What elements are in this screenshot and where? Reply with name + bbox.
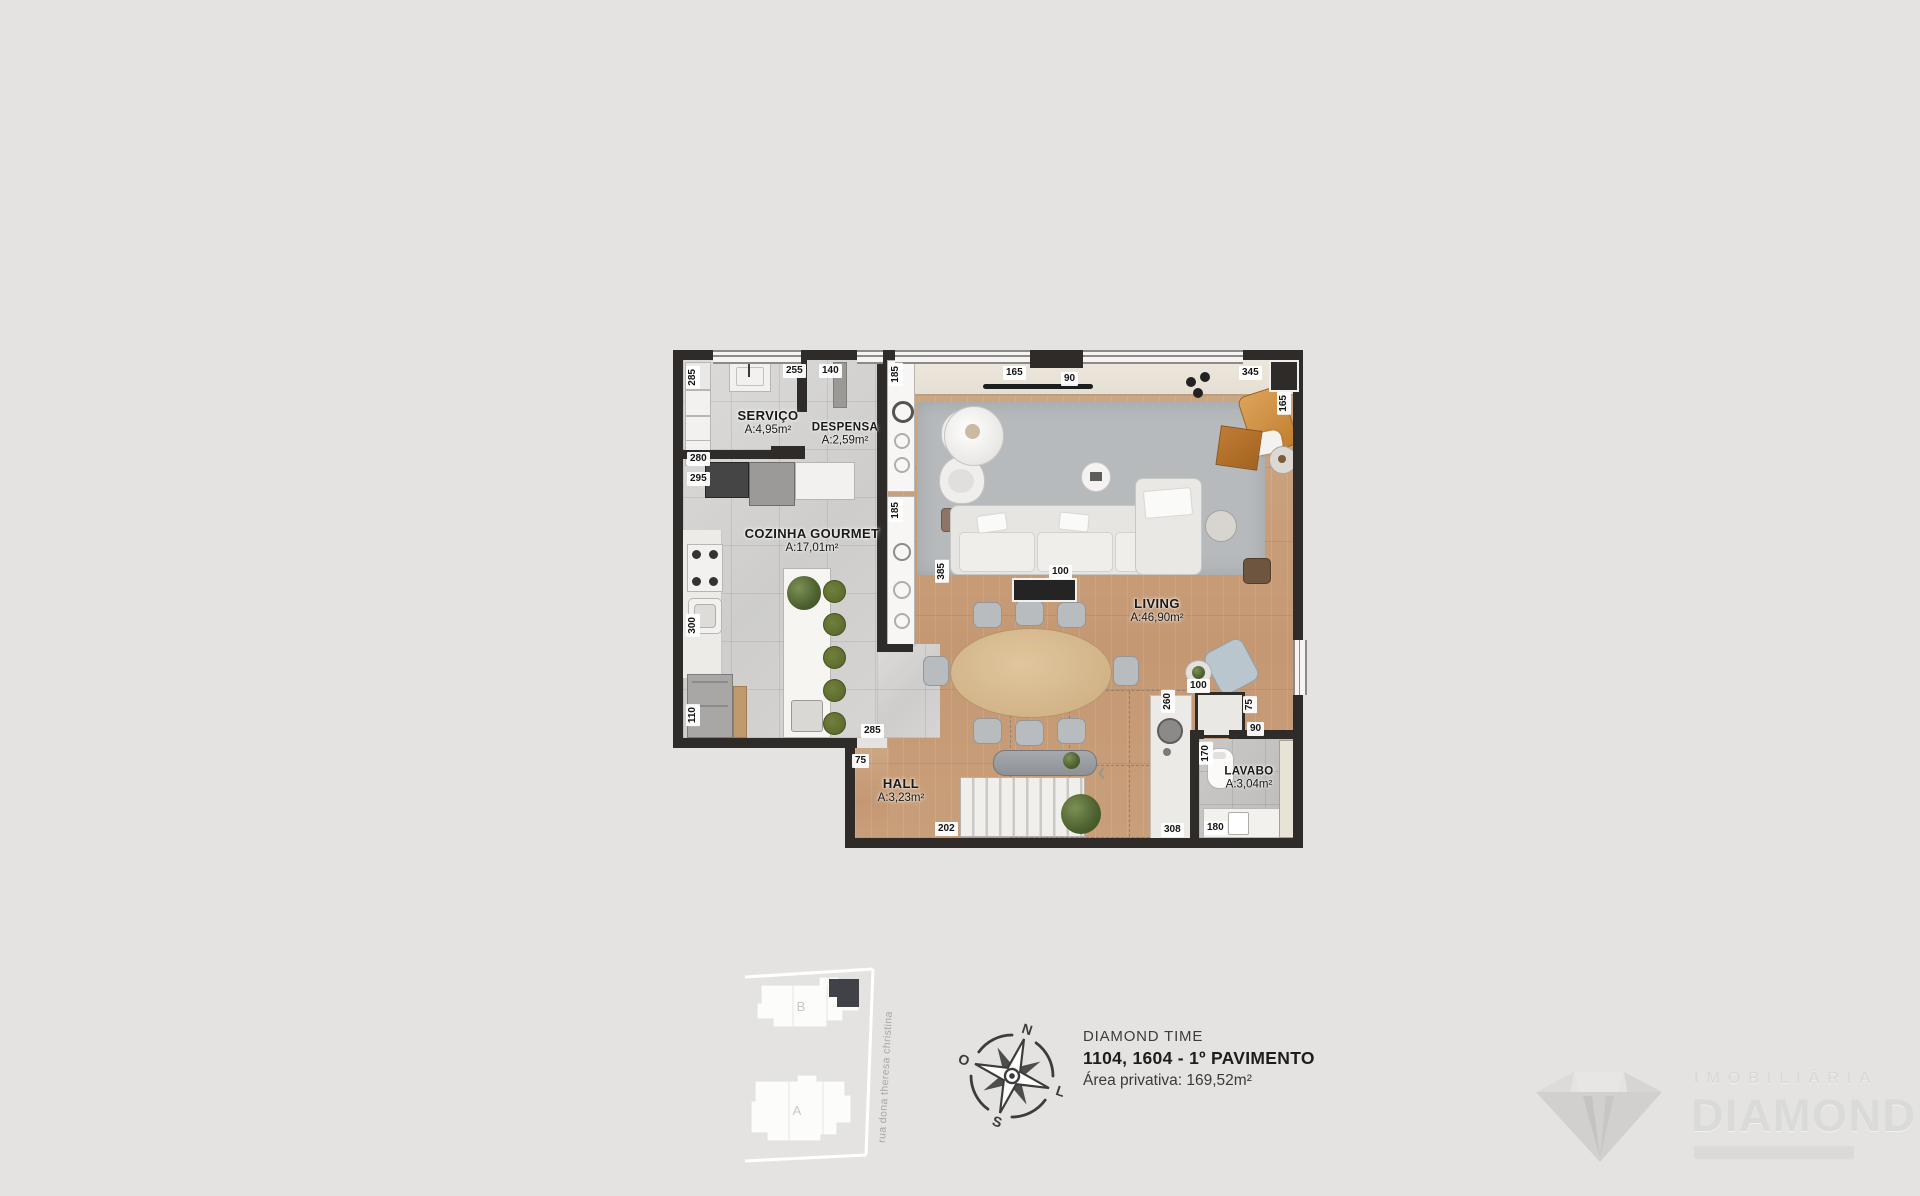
wall-kitchen-bottom [673, 738, 857, 748]
sofa-chaise [1135, 478, 1202, 575]
dining-chair [1057, 602, 1086, 628]
tray-dot [1278, 455, 1286, 463]
coffee-bean-table [1243, 558, 1271, 584]
bar-sink [1157, 718, 1183, 744]
dining-chair [1057, 718, 1086, 744]
tank-basin [736, 367, 764, 386]
dim-label: 140 [819, 364, 842, 378]
sofa-cushion [959, 532, 1035, 572]
dim-label: 285 [686, 366, 700, 389]
dining-chair [1113, 656, 1139, 686]
dim-label: 90 [1061, 372, 1078, 386]
duct-circle [894, 457, 910, 473]
room-label-hall: HALL A:3,23m² [878, 776, 925, 804]
dim-label: 75 [852, 754, 869, 768]
dim-label: 300 [686, 614, 700, 637]
window-living-2 [1083, 350, 1243, 364]
dim-label: 100 [1187, 679, 1210, 693]
wall-lavabo-left [1190, 730, 1199, 838]
book [1090, 472, 1102, 481]
wall-bottom [845, 838, 1303, 848]
dining-chair [1015, 720, 1044, 746]
site-key-map: B A rua dona theresa christina [733, 963, 905, 1168]
washer-line [692, 681, 728, 683]
vanity-sink [1228, 812, 1249, 835]
coffee-table-decor [965, 424, 980, 439]
street-line [745, 1155, 866, 1161]
private-area: Área privativa: 169,52m² [1083, 1072, 1252, 1090]
wall-right [1293, 350, 1303, 848]
cabinet-divider [686, 440, 710, 442]
dim-label: 295 [687, 472, 710, 486]
sofa-pillow [1143, 487, 1193, 519]
bar-counter [1150, 695, 1192, 840]
wall-shaft-end [877, 644, 913, 652]
dim-label: 180 [1204, 821, 1227, 835]
void-line [1129, 691, 1130, 837]
bench-plant [1063, 752, 1080, 769]
room-label-servico: SERVIÇO A:4,95m² [737, 408, 798, 436]
street-line [745, 969, 873, 977]
duct-ring [892, 401, 914, 423]
floor-plan: ❮ SERVIÇO A:4,95m² DESPENSA A:2,59m² COZ… [673, 350, 1303, 850]
logo-subtext-smudge [1694, 1146, 1854, 1159]
dim-label: 202 [935, 822, 958, 836]
tower-b-label: B [797, 999, 806, 1014]
kitchen-oven-unit [749, 462, 795, 506]
armchair-seat [948, 469, 974, 493]
unit-title: 1104, 1604 - 1º PAVIMENTO [1083, 1048, 1315, 1069]
brand-diamond-icon [1528, 1052, 1668, 1164]
tray-side-table [1205, 510, 1237, 542]
dining-chair [1015, 600, 1044, 626]
dim-label: 90 [1247, 722, 1264, 736]
tower-a-label: A [793, 1103, 802, 1118]
wood-shelf [733, 686, 747, 738]
side-table-round [1081, 462, 1111, 492]
compass-north-label: N [1020, 1022, 1035, 1038]
room-label-despensa: DESPENSA A:2,59m² [812, 422, 878, 447]
compass-west-label: O [958, 1050, 972, 1069]
dining-chair [973, 718, 1002, 744]
kitchen-fridge [705, 462, 749, 498]
project-name: DIAMOND TIME [1083, 1028, 1203, 1045]
dim-label: 100 [1049, 565, 1072, 579]
duct-circle [894, 613, 910, 629]
dim-label: 170 [1199, 742, 1213, 765]
dining-chair [923, 656, 949, 686]
compass-group: N S L O [958, 1022, 1066, 1130]
decor-dot [1200, 372, 1210, 382]
wood-ottoman [1215, 425, 1262, 470]
servico-counter-dark [771, 446, 805, 459]
room-label-lavabo: LAVABO A:3,04m² [1224, 766, 1273, 791]
dim-label: 385 [935, 560, 949, 583]
compass-arc [979, 1027, 1012, 1060]
laundry-tank [729, 360, 771, 392]
bar-stool [823, 712, 846, 735]
compass-arc [963, 1076, 996, 1109]
compass-arc [1012, 1092, 1045, 1125]
cooktop [687, 544, 723, 592]
street-line [866, 969, 873, 1155]
dim-label: 345 [1239, 366, 1262, 380]
hall-bench [993, 750, 1097, 776]
decor-dot [1186, 377, 1196, 387]
street-name: rua dona theresa christina [876, 1011, 895, 1143]
compass-rose-icon: N S L O [958, 1022, 1066, 1130]
sofa-pillow [1058, 511, 1090, 532]
decor-dot [1193, 388, 1203, 398]
burner [709, 550, 718, 559]
dim-label: 285 [861, 724, 884, 738]
hall-plant [1061, 794, 1101, 834]
coffee-table-round [944, 406, 1004, 466]
dim-label: 280 [687, 452, 710, 466]
sofa-pillow [976, 512, 1008, 534]
logo-category-text: IMOBILIÁRIA [1694, 1070, 1878, 1088]
cabinet-divider [686, 415, 710, 417]
island-plant [787, 576, 821, 610]
chevron-left-icon: ❮ [1097, 766, 1109, 778]
dim-label: 110 [686, 704, 700, 726]
wall-left [673, 350, 683, 748]
dim-label: 165 [1277, 392, 1291, 415]
wall-despensa-living [877, 350, 887, 645]
door-pocket-block [1030, 350, 1083, 368]
small-plant [1192, 666, 1205, 679]
room-label-living: LIVING A:46,90m² [1130, 596, 1183, 624]
bar-stool [823, 646, 846, 669]
room-label-cozinha: COZINHA GOURMET A:17,01m² [745, 526, 880, 554]
tv-console [1012, 578, 1077, 602]
bar-dot [1163, 748, 1171, 756]
shaft-box-corner [1269, 360, 1299, 392]
window-living-right [1293, 640, 1307, 695]
bar-stool [823, 580, 846, 603]
dim-label: 308 [1161, 823, 1184, 837]
logo-brand-text: DIAMOND [1691, 1090, 1916, 1142]
bar-stool [823, 679, 846, 702]
dim-label: 260 [1161, 690, 1175, 713]
dim-label: 185 [889, 499, 903, 522]
toilet-tank [1212, 752, 1226, 759]
burner [692, 577, 701, 586]
page: { "colors": { "background": "#e4e3e2", "… [0, 0, 1920, 1196]
duct-circle [893, 581, 911, 599]
balcony-strip [887, 360, 1293, 396]
window-despensa [857, 350, 883, 364]
dining-table [950, 628, 1112, 718]
duct-circle [894, 433, 910, 449]
compass-arc [1028, 1043, 1061, 1076]
burner [709, 577, 718, 586]
dim-label: 165 [1003, 366, 1026, 380]
burner [692, 550, 701, 559]
window-living-1 [895, 350, 1030, 364]
compass-south-label: S [990, 1113, 1004, 1130]
dim-label: 185 [889, 363, 903, 386]
window-servico [713, 350, 801, 364]
bar-stool [823, 613, 846, 636]
dim-label: 75 [1243, 696, 1257, 713]
compass-east-label: L [1054, 1082, 1066, 1100]
dining-chair [973, 602, 1002, 628]
island-sink [791, 700, 823, 732]
dim-label: 255 [783, 364, 806, 378]
kitchen-counter-top [795, 462, 855, 500]
duct-circle [893, 543, 911, 561]
